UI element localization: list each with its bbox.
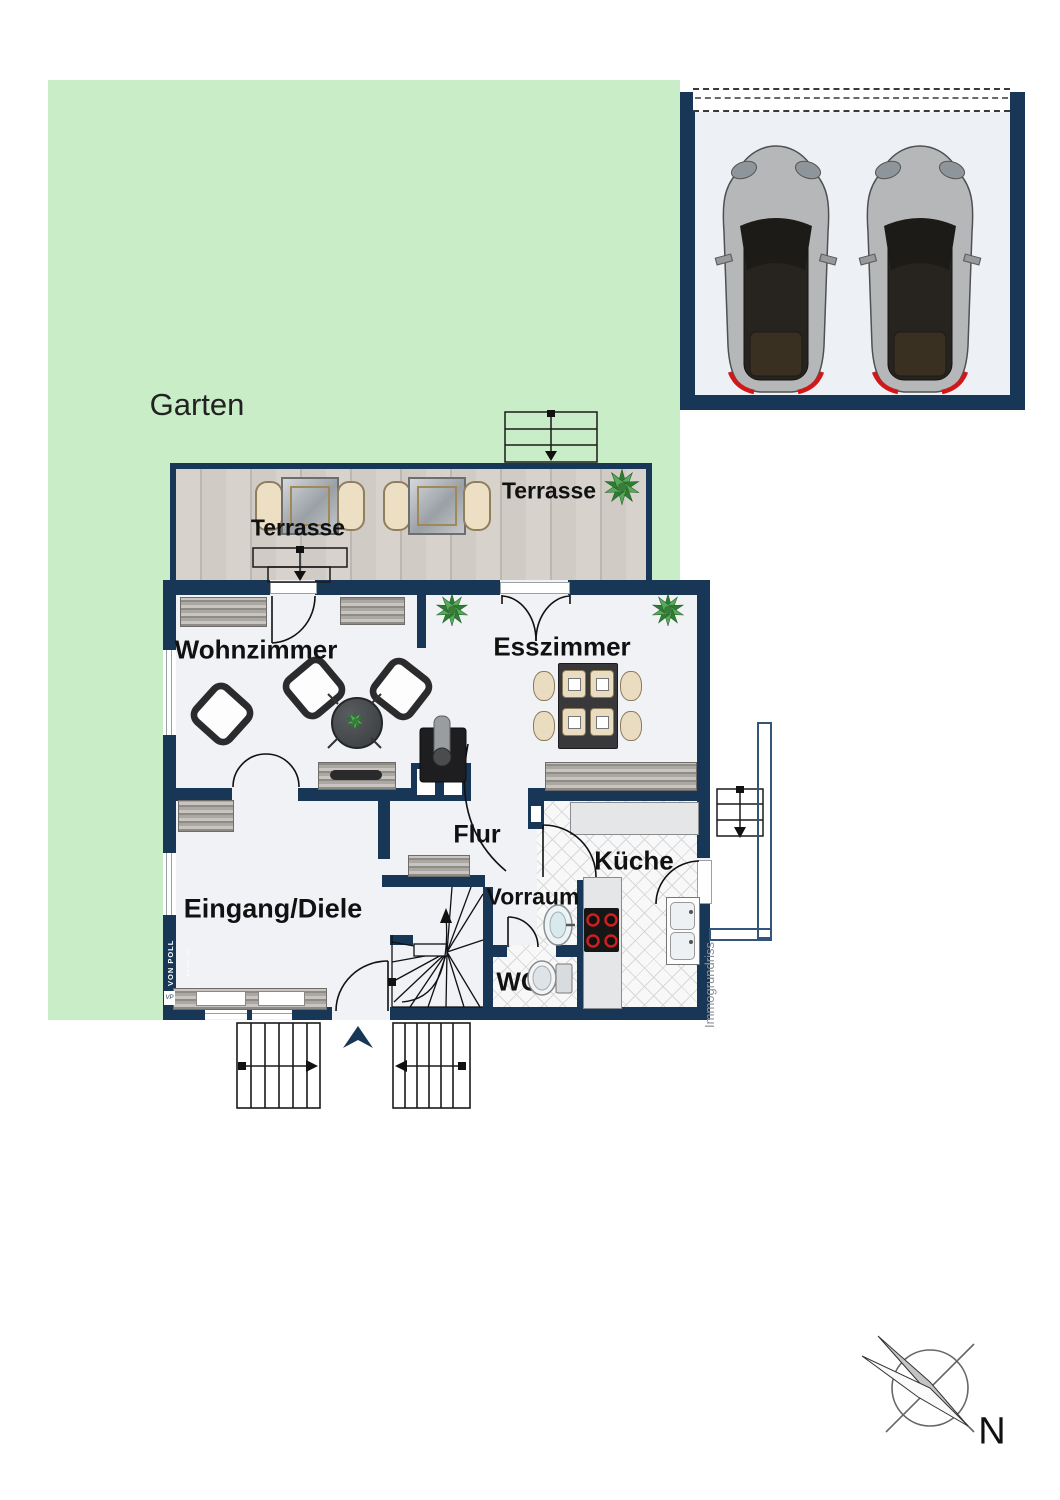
wardrobe [178,800,234,832]
wall-segment [390,1007,710,1020]
dining-chair [533,671,555,701]
room-label-wc: WC [496,967,539,998]
dining-chair [562,708,586,736]
bench-cushion [196,991,246,1006]
bench-cushion [258,991,305,1006]
terrace-label-right: Terrasse [502,478,596,505]
von-poll-monogram-box: VP [164,991,175,1005]
wall-segment [163,580,270,595]
entrance-arrow-icon [343,1026,373,1048]
terrace-table [408,477,466,535]
dining-chair [620,711,642,741]
dining-chair [620,671,642,701]
coffee-table [331,697,383,749]
dining-chair [590,708,614,736]
garage-wall-bottom [680,395,1025,410]
sink-basin [670,902,695,930]
wall-segment [163,735,176,853]
wall-segment [568,580,710,595]
wall-segment [315,580,500,595]
dining-sideboard [545,762,697,791]
room-label-vorraum: Vorraum [487,884,580,911]
room-label-kueche: Küche [594,846,673,877]
garage-wall-left [680,92,695,410]
cooktop [584,908,619,952]
wall-segment [483,945,507,957]
garage-floor [695,105,1010,397]
room-label-flur: Flur [453,821,500,850]
dining-chair [533,711,555,741]
terrace-label-left: Terrasse [251,515,345,542]
garage-wall-right [1010,92,1025,410]
watermark-text: Immogrundriss [702,942,717,1028]
von-poll-subtext: IMMOBILIEN [186,948,190,979]
window-sill [180,597,267,627]
wall-segment [390,935,413,945]
room-label-esszimmer: Esszimmer [493,632,630,663]
window-sill [340,597,405,625]
sink-basin [670,932,695,960]
garage-door-mid-line [695,97,1008,99]
wall-segment [378,801,390,859]
door-opening [500,582,570,594]
compass-icon [862,1336,974,1432]
wall-niche [444,769,462,795]
terrace-chair [383,481,411,531]
wall-niche [417,769,435,795]
wall-niche [531,806,541,822]
sideboard [408,855,470,877]
compass-north-label: N [978,1411,1005,1454]
von-poll-monogram: VP [165,995,173,1001]
sideboard-handle [330,770,382,780]
room-label-eingang: Eingang/Diele [184,894,363,925]
dining-chair [590,670,614,698]
garage-door [693,88,1010,112]
door-opening [270,582,317,594]
von-poll-logo: VON POLL IMMOBILIEN [163,938,176,988]
kitchen-counter-top [570,802,699,835]
room-label-wohnzimmer: Wohnzimmer [175,635,338,666]
von-poll-text: VON POLL [166,940,175,986]
wall-segment [417,595,426,648]
window [163,853,176,915]
garden-label: Garten [150,387,245,423]
floor-plan-page: Garten Terrasse Terrasse [0,0,1060,1500]
terrace-chair [463,481,491,531]
dining-chair [562,670,586,698]
